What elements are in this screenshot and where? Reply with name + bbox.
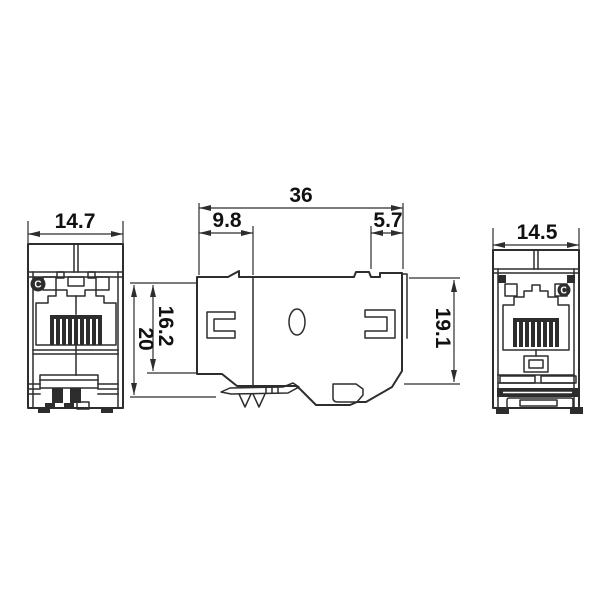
- side-rear-height-dimension: 19.1: [404, 278, 460, 384]
- rear-center-block: [524, 356, 548, 372]
- front-foot: [70, 388, 81, 403]
- comb-pin: [98, 319, 102, 345]
- rear-top-band-lines: [493, 269, 579, 273]
- side-oval-hole: [289, 309, 305, 335]
- rear-width-label: 14.5: [517, 221, 558, 244]
- rear-top-center-line: [534, 250, 538, 269]
- comb-pin: [525, 322, 529, 347]
- front-view: 14.7 C: [28, 210, 123, 413]
- front-right-stack-lines: [98, 384, 118, 394]
- comb-pin: [519, 322, 523, 347]
- rear-center-block-inner: [529, 360, 543, 368]
- comb-pin: [74, 319, 78, 345]
- rear-corner-block: [498, 275, 506, 283]
- rear-contact-comb: [513, 318, 559, 347]
- rear-bottom-tab: [570, 407, 583, 414]
- foot-tooth: [253, 394, 265, 407]
- rear-socket-outline: [503, 285, 569, 350]
- comb-pin: [92, 319, 96, 345]
- front-width-dimension: 14.7: [28, 210, 123, 247]
- rear-corner-block: [567, 275, 575, 283]
- rear-lower-panel: [500, 376, 535, 383]
- comb-bar: [513, 318, 559, 322]
- rear-lower-panel: [541, 376, 576, 383]
- comb-pin: [549, 322, 553, 347]
- side-rear-clip: [365, 310, 395, 338]
- comb-pin: [513, 322, 517, 347]
- rear-bottom-tab: [496, 407, 509, 414]
- front-foot: [52, 388, 63, 403]
- side-rear-tab-dimension: 5.7: [371, 209, 403, 269]
- rear-bottom-bracket-inner: [520, 400, 557, 406]
- mark-letter: C: [34, 280, 41, 291]
- rear-circled-c-mark: C: [558, 284, 571, 297]
- side-front-clip: [207, 312, 235, 338]
- front-left-stack-lines: [28, 384, 40, 394]
- front-contact-comb: [50, 315, 102, 345]
- comb-pin: [68, 319, 72, 345]
- side-front-section-label: 9.8: [212, 209, 242, 232]
- side-front-section-dimension: 9.8: [199, 209, 253, 275]
- comb-pin: [537, 322, 541, 347]
- front-top-center-line: [74, 244, 78, 272]
- comb-pin: [56, 319, 60, 345]
- side-total-height-label: 20: [134, 327, 157, 350]
- comb-pin: [50, 319, 54, 345]
- front-right-ear: [96, 277, 109, 290]
- comb-pin: [555, 322, 559, 347]
- front-bottom-tab: [38, 408, 50, 413]
- comb-pin: [62, 319, 66, 345]
- rear-view: 14.5 C: [493, 221, 583, 414]
- foot-ledge: [221, 383, 299, 394]
- rear-left-ear: [505, 284, 517, 296]
- foot-ticks: [266, 388, 278, 393]
- front-bottom-pad: [64, 403, 74, 409]
- comb-bar: [50, 315, 102, 319]
- rear-width-dimension: 14.5: [493, 221, 579, 253]
- side-rear-tab-label: 5.7: [373, 209, 402, 232]
- front-mount-block: [40, 375, 98, 388]
- side-rear-foot-block: [333, 384, 363, 402]
- comb-pin: [80, 319, 84, 345]
- comb-pin: [531, 322, 535, 347]
- comb-pin: [543, 322, 547, 347]
- side-rear-height-label: 19.1: [431, 308, 454, 349]
- comb-pin: [86, 319, 90, 345]
- technical-drawing-canvas: 14.7 C: [0, 0, 600, 600]
- foot-tooth: [239, 394, 251, 407]
- front-bottom-tab: [101, 408, 113, 413]
- side-view: 36 9.8 5.7 16.2 20 19.1: [130, 184, 460, 407]
- side-total-width-label: 36: [289, 184, 312, 207]
- keystone-jack-drawing: 14.7 C: [0, 0, 600, 600]
- front-latch-slot: [68, 277, 84, 286]
- front-width-label: 14.7: [55, 210, 96, 233]
